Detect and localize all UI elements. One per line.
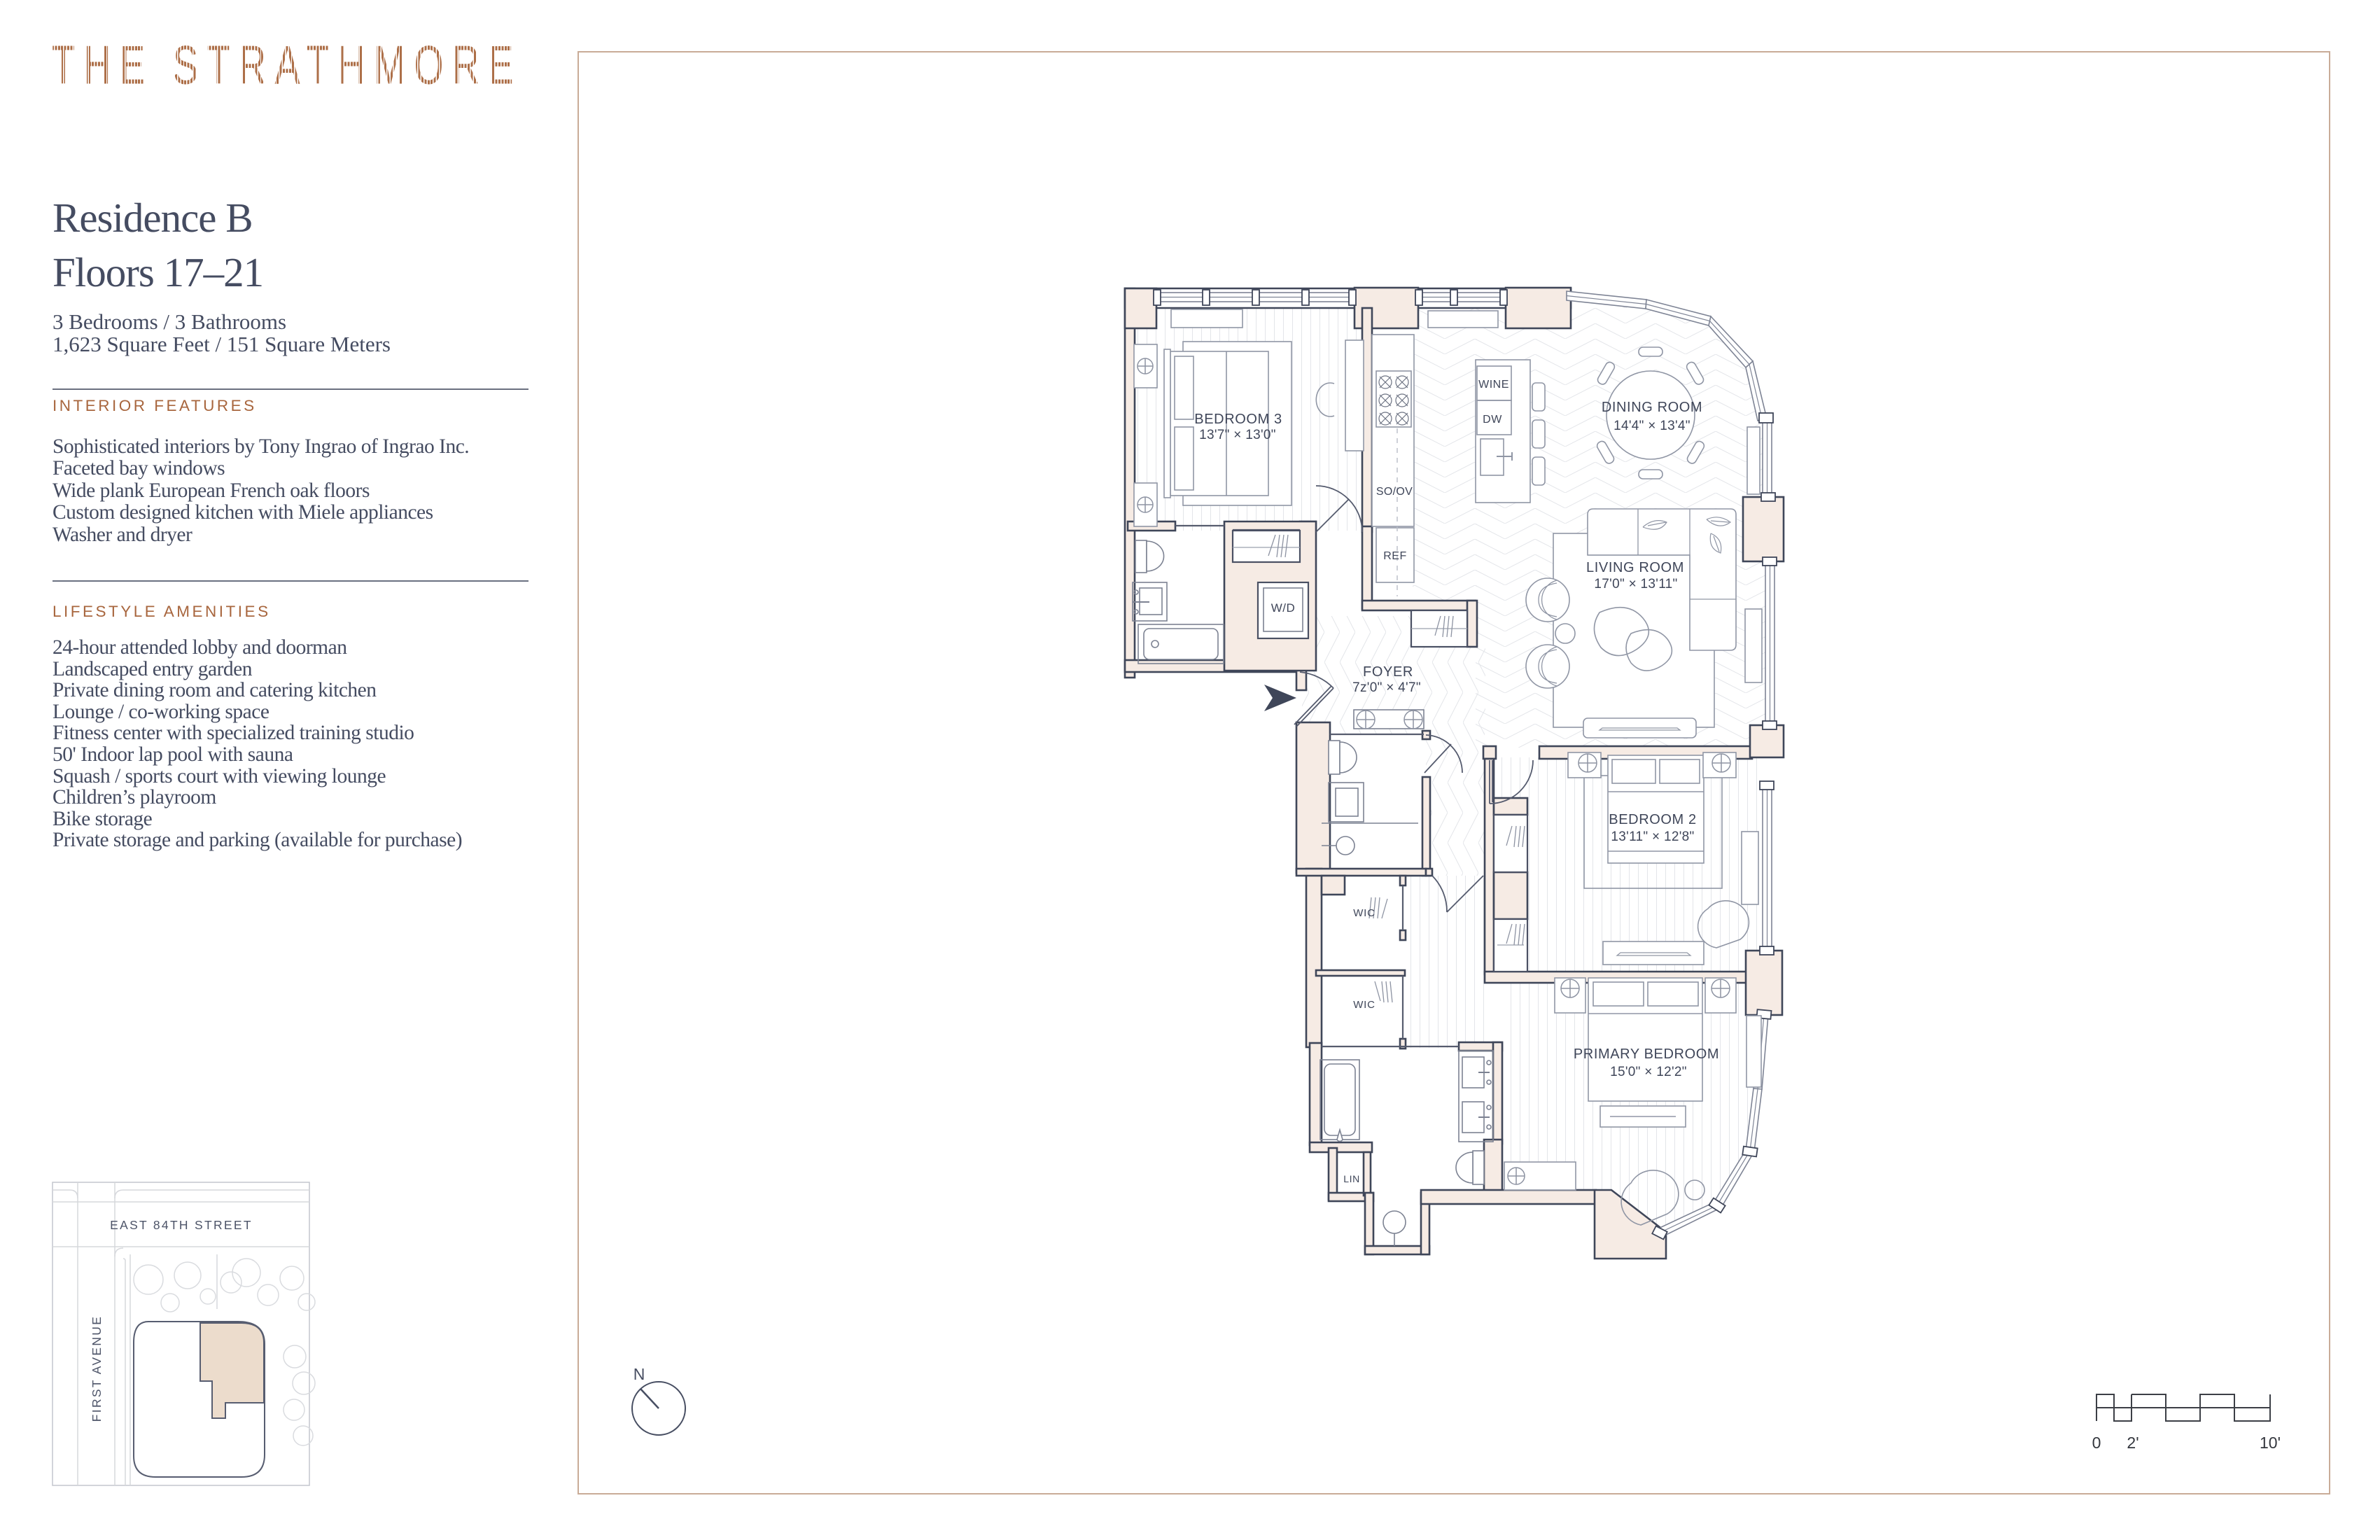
- svg-text:0: 0: [2092, 1434, 2101, 1452]
- svg-text:13'11" × 12'8": 13'11" × 12'8": [1611, 829, 1694, 844]
- svg-text:WIC: WIC: [1353, 907, 1375, 919]
- svg-text:7z'0" × 4'7": 7z'0" × 4'7": [1352, 680, 1421, 695]
- svg-text:FIRST AVENUE: FIRST AVENUE: [90, 1315, 104, 1422]
- svg-text:REF: REF: [1383, 550, 1407, 562]
- svg-text:DINING ROOM: DINING ROOM: [1602, 400, 1702, 415]
- svg-text:14'4" × 13'4": 14'4" × 13'4": [1613, 419, 1690, 433]
- svg-text:N: N: [633, 1365, 645, 1383]
- svg-text:WIC: WIC: [1353, 999, 1375, 1011]
- svg-text:17'0" × 13'11": 17'0" × 13'11": [1594, 577, 1677, 591]
- svg-text:10': 10': [2260, 1434, 2281, 1452]
- svg-text:FOYER: FOYER: [1363, 664, 1413, 680]
- svg-text:15'0" × 12'2": 15'0" × 12'2": [1610, 1065, 1687, 1079]
- svg-text:2': 2': [2127, 1434, 2138, 1452]
- svg-text:EAST 84TH STREET: EAST 84TH STREET: [110, 1218, 253, 1232]
- svg-text:BEDROOM 3: BEDROOM 3: [1194, 412, 1282, 427]
- svg-text:BEDROOM 2: BEDROOM 2: [1609, 812, 1696, 827]
- svg-text:WINE: WINE: [1478, 379, 1509, 391]
- svg-text:SO/OV: SO/OV: [1376, 486, 1413, 498]
- svg-text:LIN: LIN: [1343, 1173, 1360, 1184]
- svg-text:W/D: W/D: [1271, 601, 1296, 615]
- svg-text:DW: DW: [1483, 414, 1502, 426]
- svg-text:13'7" × 13'0": 13'7" × 13'0": [1199, 428, 1276, 442]
- svg-text:LIVING ROOM: LIVING ROOM: [1586, 560, 1684, 575]
- svg-text:PRIMARY BEDROOM: PRIMARY BEDROOM: [1574, 1046, 1719, 1062]
